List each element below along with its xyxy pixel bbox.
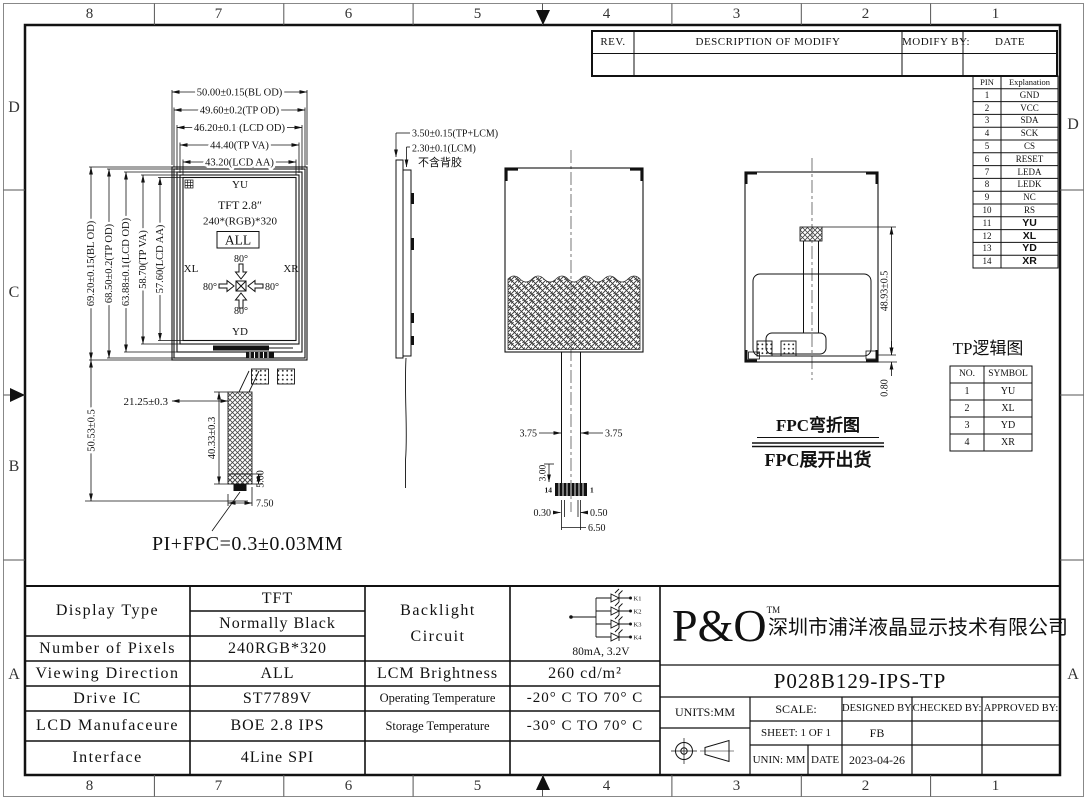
back-component-2 bbox=[781, 341, 796, 356]
dim-tp-width: 49.60±0.2(TP OD) bbox=[200, 106, 280, 117]
dim-fpc-width: 7.50 bbox=[256, 499, 274, 510]
pin14-label: 14 bbox=[545, 486, 553, 495]
revision-header-modify-by: MODIFY BY: bbox=[902, 31, 963, 53]
grid-col-label-top-8: 8 bbox=[25, 5, 154, 23]
spec-brightness-value: 260 cd/m² bbox=[510, 661, 660, 686]
spec-pixels-label: Number of Pixels bbox=[25, 636, 190, 661]
backlight-circuit: K1 K2 K3 K4 bbox=[569, 589, 642, 642]
grid-row-label-left-b: B bbox=[4, 452, 24, 482]
center-marker-left bbox=[10, 388, 25, 402]
led-label-2: K2 bbox=[634, 609, 642, 616]
spec-operating-label: Operating Temperature bbox=[365, 686, 510, 711]
pin-row-num: 12 bbox=[973, 230, 1001, 243]
tp-logic-row-symbol: YU bbox=[984, 383, 1032, 400]
tp-logic-row-symbol: XR bbox=[984, 434, 1032, 451]
pin-row-name: YU bbox=[1001, 217, 1058, 230]
grid-col-label-top-2: 2 bbox=[801, 5, 930, 23]
company-logo: P&OTM bbox=[672, 596, 782, 656]
approved-by-label: APPROVED BY: bbox=[982, 697, 1060, 721]
pin-row-name: SCK bbox=[1001, 127, 1058, 140]
spec-brightness-label: LCM Brightness bbox=[365, 661, 510, 686]
grid-col-label-bottom-6: 6 bbox=[284, 777, 413, 795]
designer-value: FB bbox=[842, 721, 912, 745]
spec-backlight-spec: 80mA, 3.2V bbox=[545, 644, 657, 660]
dim-stiffener: 5.00 bbox=[256, 470, 267, 488]
dim-650: 6.50 bbox=[588, 523, 606, 534]
spec-driveic-label: Drive IC bbox=[25, 686, 190, 711]
grid-row-label-left-c: C bbox=[4, 278, 24, 308]
front-fpc bbox=[213, 346, 295, 492]
part-number: P028B129-IPS-TP bbox=[660, 665, 1060, 697]
dim-back-height: 48.93±0.5 bbox=[880, 271, 891, 312]
pin-row-num: 14 bbox=[973, 255, 1001, 268]
grid-col-label-bottom-2: 2 bbox=[801, 777, 930, 795]
pin-row-num: 1 bbox=[973, 89, 1001, 102]
designed-by-label: DESIGNED BY: bbox=[842, 697, 912, 721]
pin-row-name: RS bbox=[1001, 204, 1058, 217]
label-yu: YU bbox=[232, 179, 248, 191]
fpc-tail bbox=[228, 392, 252, 484]
fpc-tip-connector bbox=[234, 484, 247, 491]
tp-logic-title: TP逻辑图 bbox=[934, 338, 1042, 360]
tp-logic-row-num: 2 bbox=[950, 400, 984, 417]
pin-table-header-explanation: Explanation bbox=[1001, 76, 1058, 89]
dim-back-080: 0.80 bbox=[880, 379, 891, 397]
side-view-note: 不含背胶 bbox=[418, 156, 478, 170]
pin-row-name: YD bbox=[1001, 242, 1058, 255]
spec-manufacturer-value: BOE 2.8 IPS bbox=[190, 711, 365, 741]
pin-row-num: 2 bbox=[973, 102, 1001, 115]
corner-pixel-mark bbox=[185, 180, 193, 188]
sheet-label: SHEET: 1 OF 1 bbox=[750, 721, 842, 745]
dim-bl-width: 50.00±0.15(BL OD) bbox=[197, 88, 283, 99]
adhesive-hatch bbox=[508, 276, 640, 350]
pin-row-name: VCC bbox=[1001, 102, 1058, 115]
grid-col-label-top-6: 6 bbox=[284, 5, 413, 23]
pin-row-num: 9 bbox=[973, 191, 1001, 204]
led-label-3: K3 bbox=[634, 622, 642, 629]
spec-backlight-label: Backlight Circuit bbox=[392, 598, 484, 650]
spec-operating-value: -20° C TO 70° C bbox=[510, 686, 660, 711]
dim-lcdaa-height: 57.60(LCD AA) bbox=[155, 224, 166, 293]
dim-thickness-total: 3.50±0.15(TP+LCM) bbox=[412, 129, 498, 140]
pin-row-name: LEDK bbox=[1001, 178, 1058, 191]
grid-col-label-top-3: 3 bbox=[672, 5, 801, 23]
revision-header-description: DESCRIPTION OF MODIFY bbox=[634, 31, 902, 53]
dim-300: 3.00 bbox=[539, 464, 549, 481]
pin-row-name: NC bbox=[1001, 191, 1058, 204]
checked-by-label: CHECKED BY: bbox=[912, 697, 982, 721]
fpc-bend-note: FPC弯折图 bbox=[757, 415, 879, 438]
pin-row-name: CS bbox=[1001, 140, 1058, 153]
led-1 bbox=[611, 589, 632, 602]
pin-row-name: RESET bbox=[1001, 153, 1058, 166]
led-label-4: K4 bbox=[634, 635, 643, 642]
viewing-direction-symbol bbox=[219, 264, 263, 308]
tp-logic-row-num: 1 bbox=[950, 383, 984, 400]
fpc-bond-pad bbox=[800, 227, 822, 241]
pin-row-name: XL bbox=[1001, 230, 1058, 243]
grid-col-label-top-4: 4 bbox=[542, 5, 671, 23]
grid-col-label-bottom-7: 7 bbox=[154, 777, 283, 795]
pin-row-name: SDA bbox=[1001, 114, 1058, 127]
dim-375-left: 3.75 bbox=[520, 429, 538, 440]
spec-pixels-value: 240RGB*320 bbox=[190, 636, 365, 661]
spec-interface-label: Interface bbox=[25, 741, 190, 775]
dim-lcd-width: 46.20±0.1 (LCD OD) bbox=[194, 123, 285, 134]
grid-row-label-left-a: A bbox=[4, 660, 24, 690]
spec-driveic-value: ST7789V bbox=[190, 686, 365, 711]
grid-col-label-top-5: 5 bbox=[413, 5, 542, 23]
pi-fpc-note: PI+FPC=0.3±0.03MM bbox=[152, 531, 362, 557]
fpc-stiffener bbox=[228, 474, 252, 484]
corner-marks bbox=[507, 170, 642, 182]
date-label: DATE bbox=[808, 745, 842, 775]
dim-thickness-lcm: 2.30±0.1(LCM) bbox=[412, 144, 476, 155]
pin-row-num: 6 bbox=[973, 153, 1001, 166]
spec-manufacturer-label: LCD Manufaceure bbox=[25, 711, 190, 741]
tp-logic-header-no: NO. bbox=[950, 366, 984, 383]
grid-col-label-bottom-5: 5 bbox=[413, 777, 542, 795]
spec-display-type-label: Display Type bbox=[25, 586, 190, 636]
dim-050: 0.50 bbox=[590, 508, 608, 519]
dim-tpva-height: 58.70(TP VA) bbox=[138, 230, 149, 289]
tp-logic-row-num: 4 bbox=[950, 434, 984, 451]
component-2 bbox=[278, 369, 295, 384]
spec-interface-value: 4Line SPI bbox=[190, 741, 365, 775]
label-resolution: 240*(RGB)*320 bbox=[203, 216, 277, 228]
spec-viewing-value: ALL bbox=[190, 661, 365, 686]
tp-logic-header-symbol: SYMBOL bbox=[984, 366, 1032, 383]
units-label: UNITS:MM bbox=[660, 697, 750, 728]
pin-row-name: LEDA bbox=[1001, 166, 1058, 179]
grid-col-label-top-1: 1 bbox=[931, 5, 1060, 23]
spec-storage-label: Storage Temperature bbox=[365, 711, 510, 741]
spec-viewing-label: Viewing Direction bbox=[25, 661, 190, 686]
dim-fpc-length: 40.33±0.3 bbox=[207, 417, 218, 460]
angle-right: 80° bbox=[265, 282, 279, 293]
led-3 bbox=[611, 615, 632, 628]
revision-header-rev: REV. bbox=[592, 31, 634, 53]
front-view: YU TFT 2.8″ 240*(RGB)*320 ALL XL XR YD 8… bbox=[85, 88, 307, 532]
fpc-note-double-line bbox=[752, 443, 884, 447]
tp-logic-row-num: 3 bbox=[950, 417, 984, 434]
label-xr: XR bbox=[283, 263, 299, 275]
note-leader bbox=[212, 492, 240, 531]
pin-row-num: 5 bbox=[973, 140, 1001, 153]
back-view: 48.93±0.5 0.80 bbox=[745, 158, 897, 397]
tp-logic-row-symbol: YD bbox=[984, 417, 1032, 434]
grid-col-label-bottom-4: 4 bbox=[542, 777, 671, 795]
dim-030: 0.30 bbox=[534, 508, 552, 519]
grid-row-label-right-a: A bbox=[1063, 660, 1083, 690]
logo-text: P&O bbox=[672, 600, 767, 651]
grid-row-label-right-d: D bbox=[1063, 110, 1083, 140]
label-size: TFT 2.8″ bbox=[218, 198, 262, 212]
dim-tpva-width: 44.40(TP VA) bbox=[210, 141, 269, 152]
side-view: 3.50±0.15(TP+LCM) 2.30±0.1(LCM) bbox=[396, 129, 498, 489]
grid-col-label-top-7: 7 bbox=[154, 5, 283, 23]
pin-row-name: XR bbox=[1001, 255, 1058, 268]
grid-col-label-bottom-8: 8 bbox=[25, 777, 154, 795]
led-4 bbox=[611, 628, 632, 641]
dim-bl-height: 69.20±0.15(BL OD) bbox=[86, 220, 97, 306]
grid-row-label-left-d: D bbox=[4, 93, 24, 123]
dim-lcdaa-width: 43.20(LCD AA) bbox=[205, 158, 274, 169]
dim-375-right: 3.75 bbox=[605, 429, 623, 440]
spec-display-type-value1: TFT bbox=[190, 586, 365, 611]
pin-row-num: 11 bbox=[973, 217, 1001, 230]
label-xl: XL bbox=[184, 263, 199, 275]
pin-row-num: 3 bbox=[973, 114, 1001, 127]
date-value: 2023-04-26 bbox=[842, 745, 912, 775]
dim-total-height: 50.53±0.5 bbox=[87, 409, 98, 452]
led-2 bbox=[611, 602, 632, 615]
projection-symbol bbox=[671, 738, 734, 764]
label-yd: YD bbox=[232, 326, 248, 338]
pin-row-num: 8 bbox=[973, 178, 1001, 191]
revision-header-date: DATE bbox=[963, 31, 1057, 53]
dim-tp-height: 68.50±0.2(TP OD) bbox=[104, 223, 115, 303]
corner-marks bbox=[747, 174, 877, 361]
pin-row-num: 7 bbox=[973, 166, 1001, 179]
angle-top: 80° bbox=[234, 254, 248, 265]
spec-storage-value: -30° C TO 70° C bbox=[510, 711, 660, 741]
spec-display-type-value2: Normally Black bbox=[190, 611, 365, 636]
dim-fpc-offset: 21.25±0.3 bbox=[123, 396, 168, 408]
pin-row-num: 4 bbox=[973, 127, 1001, 140]
unin-label: UNIN: MM bbox=[750, 745, 808, 775]
pin1-label: 1 bbox=[590, 486, 594, 495]
label-viewing: ALL bbox=[225, 233, 251, 248]
led-label-1: K1 bbox=[634, 596, 642, 603]
pin-row-name: GND bbox=[1001, 89, 1058, 102]
side-fpc-line bbox=[405, 358, 406, 488]
tp-logic-row-symbol: XL bbox=[984, 400, 1032, 417]
company-name: 深圳市浦洋液晶显示技术有限公司 bbox=[768, 612, 1058, 644]
scale-label: SCALE: bbox=[750, 697, 842, 721]
grid-col-label-bottom-1: 1 bbox=[931, 777, 1060, 795]
pin-row-num: 13 bbox=[973, 242, 1001, 255]
pin-table-header-pin: PIN bbox=[973, 76, 1001, 89]
grid-col-label-bottom-3: 3 bbox=[672, 777, 801, 795]
fpc-ship-note: FPC展开出货 bbox=[746, 449, 890, 471]
pin-row-num: 10 bbox=[973, 204, 1001, 217]
tp-view: 14 1 3.75 3.75 3.00 0.30 0.50 6.50 bbox=[505, 150, 643, 534]
angle-left: 80° bbox=[203, 282, 217, 293]
dim-lcd-height: 63.88±0.1(LCD OD) bbox=[121, 217, 132, 306]
